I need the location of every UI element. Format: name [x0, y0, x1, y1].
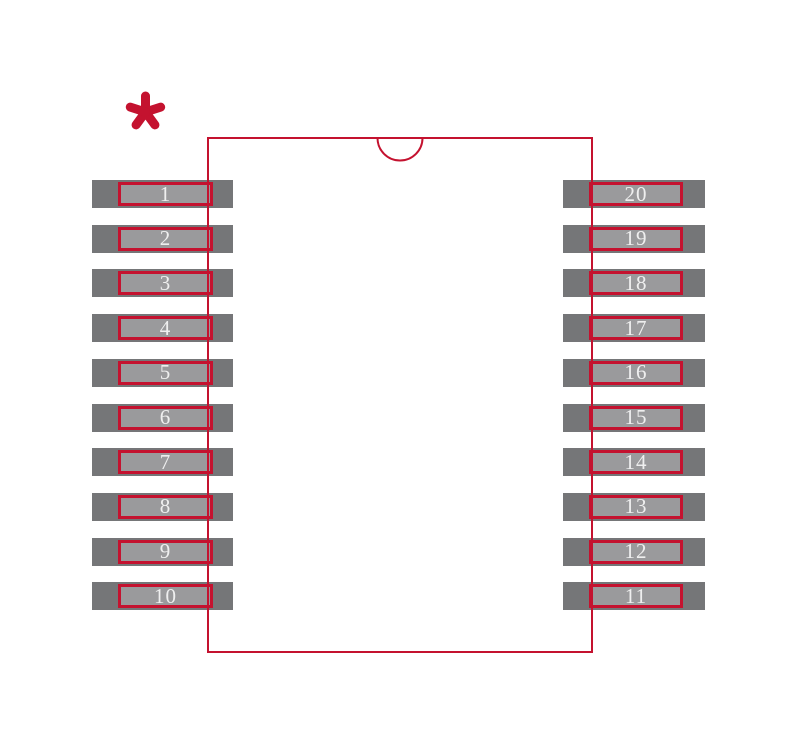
- pin-number: 12: [625, 541, 648, 562]
- pin-number: 8: [160, 496, 172, 517]
- pad-right-pin-11: 11: [563, 582, 705, 610]
- pad-left-pin-8: 8: [92, 493, 233, 521]
- pin-lead-outline: 16: [589, 361, 683, 385]
- pin-lead-outline: 18: [589, 271, 683, 295]
- pin-number: 6: [160, 407, 172, 428]
- pad-left-pin-9: 9: [92, 538, 233, 566]
- pin1-notch-icon: [378, 138, 423, 161]
- pin-number: 4: [160, 318, 172, 339]
- pad-left-pin-1: 1: [92, 180, 233, 208]
- pin-number: 5: [160, 362, 172, 383]
- pin-number: 3: [160, 273, 172, 294]
- pin-number: 16: [625, 362, 648, 383]
- package-body-outline: [208, 138, 592, 652]
- pad-left-pin-2: 2: [92, 225, 233, 253]
- pin-lead-outline: 7: [118, 450, 213, 474]
- pin-number: 14: [625, 452, 648, 473]
- pin-lead-outline: 9: [118, 540, 213, 564]
- pin-lead-outline: 17: [589, 316, 683, 340]
- pin-lead-outline: 12: [589, 540, 683, 564]
- pad-right-pin-17: 17: [563, 314, 705, 342]
- pad-right-pin-18: 18: [563, 269, 705, 297]
- pin-lead-outline: 2: [118, 227, 213, 251]
- pin-lead-outline: 11: [589, 584, 683, 608]
- pad-left-pin-4: 4: [92, 314, 233, 342]
- pad-right-pin-19: 19: [563, 225, 705, 253]
- pin-number: 15: [625, 407, 648, 428]
- pin-number: 13: [625, 496, 648, 517]
- pin-lead-outline: 5: [118, 361, 213, 385]
- pad-right-pin-14: 14: [563, 448, 705, 476]
- pad-right-pin-15: 15: [563, 404, 705, 432]
- pad-right-pin-13: 13: [563, 493, 705, 521]
- pad-right-pin-12: 12: [563, 538, 705, 566]
- pin-lead-outline: 13: [589, 495, 683, 519]
- pad-right-pin-16: 16: [563, 359, 705, 387]
- pin-number: 9: [160, 541, 172, 562]
- pin-lead-outline: 6: [118, 406, 213, 430]
- pad-left-pin-5: 5: [92, 359, 233, 387]
- pin1-marker-asterisk-icon: [130, 96, 160, 125]
- pin-number: 20: [625, 184, 648, 205]
- pad-left-pin-3: 3: [92, 269, 233, 297]
- pin-number: 7: [160, 452, 172, 473]
- pin-lead-outline: 20: [589, 182, 683, 206]
- pad-right-pin-20: 20: [563, 180, 705, 208]
- pin-number: 11: [625, 586, 647, 607]
- pin-lead-outline: 8: [118, 495, 213, 519]
- pin-lead-outline: 10: [118, 584, 213, 608]
- pad-left-pin-6: 6: [92, 404, 233, 432]
- pad-left-pin-7: 7: [92, 448, 233, 476]
- pin-number: 18: [625, 273, 648, 294]
- pin-number: 19: [625, 228, 648, 249]
- land-pattern-diagram: 12345678910 20191817161514131211: [0, 0, 800, 739]
- pin-number: 2: [160, 228, 172, 249]
- pin-lead-outline: 4: [118, 316, 213, 340]
- pin-number: 1: [160, 184, 172, 205]
- pin-lead-outline: 19: [589, 227, 683, 251]
- pin-lead-outline: 15: [589, 406, 683, 430]
- pin-lead-outline: 3: [118, 271, 213, 295]
- pin-number: 10: [154, 586, 177, 607]
- pin-lead-outline: 1: [118, 182, 213, 206]
- pin-number: 17: [625, 318, 648, 339]
- pad-left-pin-10: 10: [92, 582, 233, 610]
- pin-lead-outline: 14: [589, 450, 683, 474]
